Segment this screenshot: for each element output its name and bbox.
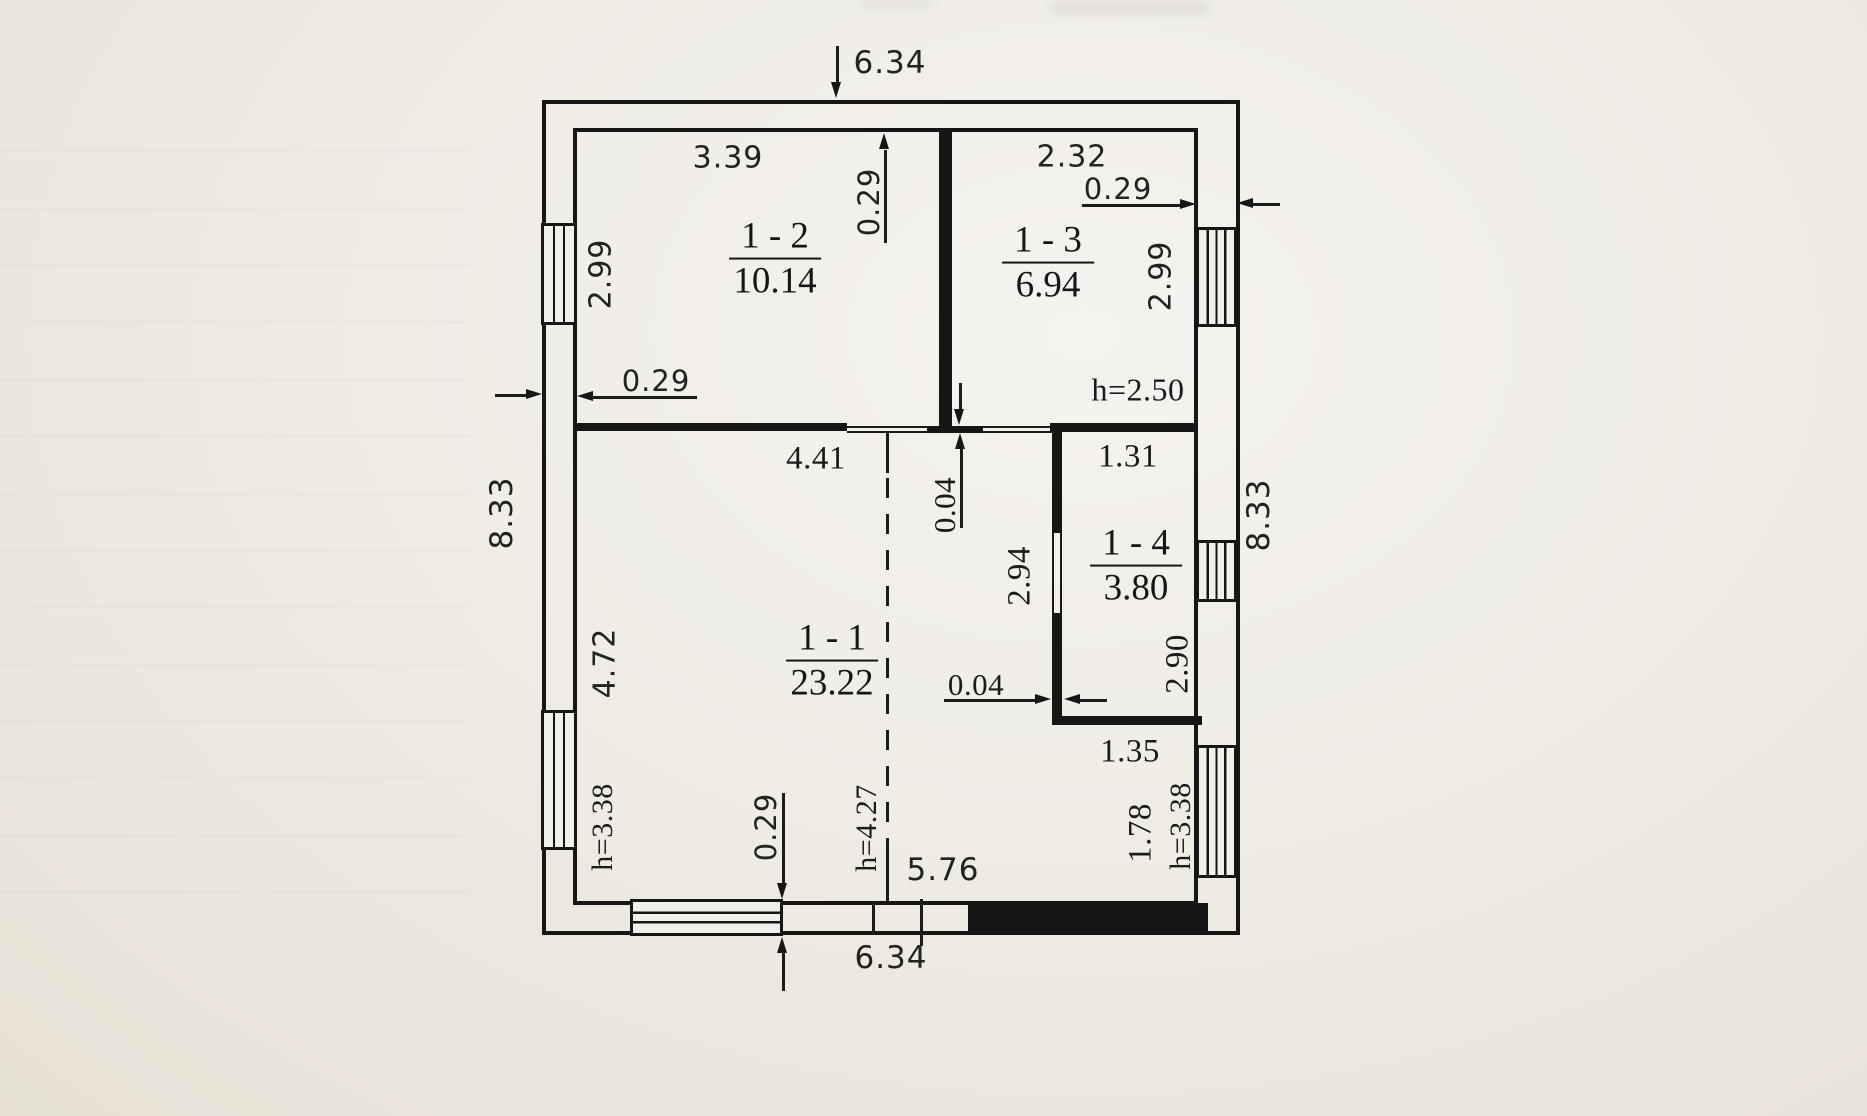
dim-corridor-width: 1.78 — [1123, 803, 1160, 863]
arrow-up-bottomwall — [777, 937, 787, 953]
window-left-upper — [541, 223, 577, 325]
wall-room11-room14-upper — [1052, 425, 1062, 533]
arrow-down-bottomwall — [777, 883, 787, 899]
tick-inner-width — [886, 850, 889, 903]
label-height-right: h=3.38 — [1164, 782, 1198, 869]
paper-ghost-lines — [0, 150, 470, 930]
dim-partition-thickness-h: 0.04 — [948, 667, 1004, 703]
dashed-split-line — [886, 478, 889, 850]
tick-bottom-width — [920, 899, 923, 946]
dim-room12-width: 3.39 — [693, 141, 764, 176]
room-1-1-number: 1 - 1 — [786, 618, 878, 662]
floor-plan-scan: 1 - 1 23.22 1 - 2 10.14 1 - 3 6.94 1 - 4… — [0, 0, 1867, 1116]
room-1-3-area: 6.94 — [1002, 265, 1094, 306]
dim-corridor-height: 2.90 — [1160, 634, 1197, 694]
room-1-3-label: 1 - 3 6.94 — [1002, 220, 1094, 307]
paper-smudge — [862, 0, 932, 8]
dim-room11-width: 4.41 — [786, 441, 846, 478]
window-right-upper — [1196, 227, 1237, 327]
room-1-4-label: 1 - 4 3.80 — [1090, 523, 1182, 610]
dim-room14-height: 2.94 — [1002, 546, 1039, 606]
dim-line-partition2-right — [1079, 699, 1107, 702]
room-1-2-area: 10.14 — [729, 261, 821, 302]
partition-junction — [927, 426, 983, 433]
arrow-left-rightwall — [1237, 198, 1253, 208]
arrow-left-leftwall — [577, 391, 593, 401]
dim-line-leftwall-out — [495, 394, 527, 397]
label-height-room13: h=2.50 — [1091, 372, 1184, 409]
arrow-down-partition — [954, 409, 964, 425]
dim-line-rightwall-out — [1253, 203, 1280, 206]
arrow-right-partition2 — [1035, 694, 1051, 704]
window-left-lower — [541, 710, 577, 850]
room-1-1-area: 23.22 — [786, 663, 878, 704]
dim-left-total-height: 8.33 — [484, 476, 520, 549]
dim-room14-bottom-width: 1.35 — [1100, 734, 1160, 771]
dim-wall-bottom-thickness: 0.29 — [749, 793, 783, 862]
dim-wall-right-thickness: 0.29 — [1084, 172, 1153, 206]
room-1-2-number: 1 - 2 — [729, 216, 821, 260]
dim-left-lower-height: 4.72 — [588, 628, 623, 699]
dim-left-upper-height: 2.99 — [584, 239, 619, 310]
arrow-right-rightwall — [1180, 199, 1196, 209]
dim-line-bottomwall-below — [782, 953, 785, 991]
dim-inner-width: 5.76 — [906, 852, 979, 888]
arrow-up-partition — [955, 433, 965, 449]
door-room11-room14 — [1052, 533, 1062, 613]
paper-smudge — [1050, 2, 1210, 14]
room-1-3-number: 1 - 3 — [1002, 220, 1094, 264]
wall-room11-room14-lower — [1052, 613, 1062, 725]
dim-line-partition-above — [959, 383, 962, 411]
wall-bottom-solid — [968, 903, 1208, 933]
wall-room11-room12 — [575, 423, 847, 431]
dim-line-top — [836, 46, 839, 84]
wall-room14-bottom — [1052, 716, 1202, 725]
label-height-left: h=3.38 — [586, 783, 620, 870]
room-1-1-label: 1 - 1 23.22 — [786, 618, 878, 705]
dim-room14-top-width: 1.31 — [1098, 439, 1158, 476]
wall-room13-room14 — [1050, 423, 1198, 432]
window-right-middle — [1196, 540, 1237, 602]
dim-bottom-overall: 6.34 — [854, 940, 927, 976]
wall-room12-room13 — [939, 131, 952, 431]
arrow-left-partition2 — [1064, 694, 1080, 704]
dim-right-upper-height: 2.99 — [1144, 241, 1179, 312]
tick-room11-width — [886, 433, 889, 473]
window-right-lower — [1196, 745, 1237, 878]
room-1-2-label: 1 - 2 10.14 — [729, 216, 821, 303]
room-1-4-number: 1 - 4 — [1090, 523, 1182, 567]
dim-wall-left-thickness: 0.29 — [622, 364, 691, 398]
arrow-down-top-wall — [831, 82, 841, 98]
label-height-center: h=4.27 — [850, 784, 884, 871]
dim-right-total-height: 8.33 — [1241, 478, 1277, 551]
dim-room13-width: 2.32 — [1037, 140, 1108, 175]
arrow-right-leftwall — [526, 389, 542, 399]
dim-partition-thickness-v: 0.04 — [927, 477, 963, 533]
arrow-up-topwall — [879, 133, 889, 149]
dim-top-overall: 6.34 — [853, 45, 926, 81]
dim-wall-top-thickness: 0.29 — [852, 168, 886, 237]
window-bottom — [630, 899, 783, 936]
entrance-jamb — [872, 901, 875, 935]
room-1-4-area: 3.80 — [1090, 568, 1182, 609]
